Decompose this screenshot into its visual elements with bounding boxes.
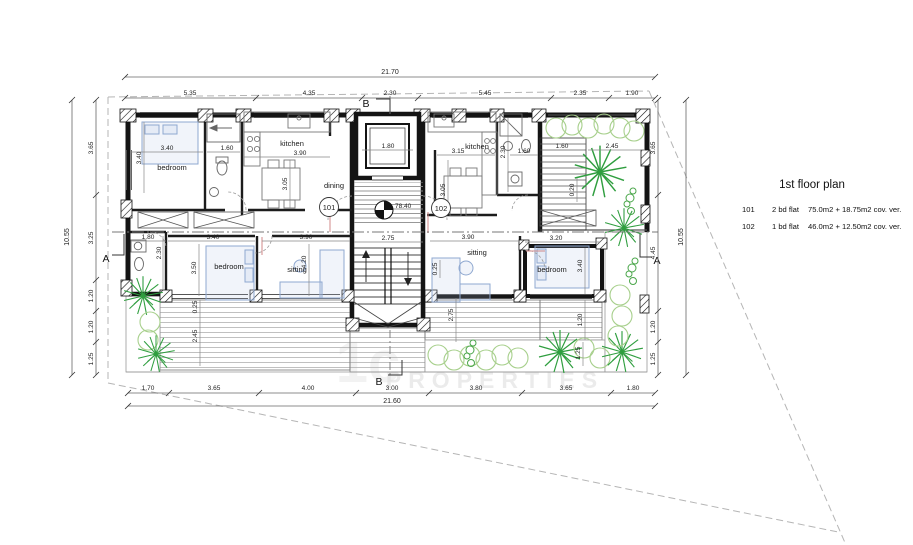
palm-tree — [575, 146, 627, 198]
dining-table-101 — [262, 168, 300, 200]
basin-101b — [134, 242, 142, 250]
dim-sitting102-w: 3.90 — [462, 234, 475, 241]
title-block: 1st floor plan 101 2 bd flat 75.0m2 + 18… — [742, 179, 901, 231]
room-kitchen-101: kitchen — [280, 139, 304, 148]
section-label-a-left: A — [102, 253, 109, 265]
room-sitting-102: sitting — [467, 248, 487, 257]
flat-tag-102: 102 — [435, 204, 448, 213]
dim-left-4: 1.20 — [88, 320, 95, 333]
dim-bed101-h: 3.40 — [136, 151, 143, 164]
washer-102 — [508, 172, 522, 186]
dim-right-3: 1.20 — [650, 320, 657, 333]
dim-stair-w: 2.75 — [382, 235, 395, 242]
dim-top-4: 5.45 — [479, 90, 492, 97]
dim-bottom-5: 3.80 — [470, 385, 483, 392]
stair-internal — [354, 248, 421, 327]
room-bedroom-102: bedroom — [537, 265, 567, 274]
legend-area-102: 46.0m2 + 12.50m2 cov. ver. — [808, 222, 901, 231]
dim-left-total: 10.55 — [64, 228, 71, 246]
room-bedroom-101top: bedroom — [157, 163, 187, 172]
wc-toilet-101b — [135, 258, 144, 271]
dim-bed102-h: 3.40 — [577, 259, 584, 272]
room-kitchen-102: kitchen — [465, 142, 489, 151]
dim-deck102-h: 2.75 — [448, 308, 455, 321]
veranda-101-deck — [160, 300, 350, 370]
dim-bottom-4: 3.00 — [386, 385, 399, 392]
dim-deck102r-b: 1.25 — [575, 346, 582, 359]
dim-deck101-off: 0.25 — [192, 300, 199, 313]
dim-right-4: 1.25 — [650, 352, 657, 365]
section-label-b-bottom: B — [375, 376, 382, 388]
dim-sitting101-w: 3.90 — [300, 234, 313, 241]
dim-deck101-h: 2.45 — [192, 329, 199, 342]
floor-plan-sheet: 1c PROPERTIES — [0, 0, 913, 545]
dim-top-1: 5.35 — [184, 90, 197, 97]
veranda-102-deck — [425, 300, 540, 340]
dim-bottom-3: 4.00 — [302, 385, 315, 392]
dim-bottom-total: 21.60 — [383, 398, 401, 405]
dim-lift-w: 1.80 — [382, 143, 395, 150]
section-label-b-top: B — [362, 98, 369, 110]
dim-kitchen102-w: 3.15 — [452, 148, 465, 155]
basin-101 — [210, 188, 219, 197]
legend-type-101: 2 bd flat — [772, 205, 800, 214]
room-bedroom-101: bedroom — [214, 262, 244, 271]
dim-left-1: 3.65 — [88, 141, 95, 154]
dim-kitchen102-h: 3.05 — [440, 183, 447, 196]
dim-extstair-off: 0.20 — [569, 183, 576, 196]
dim-top-2: 4.35 — [303, 90, 316, 97]
legend-row: 102 1 bd flat 46.0m2 + 12.50m2 cov. ver. — [742, 222, 901, 231]
dim-bed102-w: 3.20 — [550, 235, 563, 242]
dim-right-2: 4.45 — [650, 246, 657, 259]
room-sitting-101: sitting — [287, 265, 307, 274]
dim-dining101-h: 3.05 — [282, 177, 289, 190]
legend-area-101: 75.0m2 + 18.75m2 cov. ver. — [808, 205, 901, 214]
veranda-center-deck — [350, 328, 425, 372]
dim-top-5: 2.35 — [574, 90, 587, 97]
legend-row: 101 2 bd flat 75.0m2 + 18.75m2 cov. ver. — [742, 205, 901, 214]
veranda-102b-deck — [540, 300, 602, 340]
dim-deck102r-a: 1.20 — [577, 313, 584, 326]
sheet-title: 1st floor plan — [779, 179, 845, 191]
dim-wc101-w: 1.80 — [142, 234, 155, 241]
dim-left-5: 1.25 — [88, 352, 95, 365]
level-landing: 78.40 — [395, 203, 412, 210]
dim-bed101-w: 3.40 — [161, 145, 174, 152]
legend-no-102: 102 — [742, 222, 755, 231]
dim-right-1: 3.65 — [650, 141, 657, 154]
dim-left-3: 1.20 — [88, 289, 95, 302]
legend-type-102: 1 bd flat — [772, 222, 800, 231]
room-dining-101: dining — [324, 181, 344, 190]
dim-extstair-w: 1.60 — [556, 143, 569, 150]
dim-terrace-w: 2.45 — [606, 143, 619, 150]
sofa-101 — [320, 250, 344, 298]
dim-bed101b-w: 3.40 — [207, 234, 220, 241]
dim-wc101-h: 2.30 — [156, 246, 163, 259]
dim-top-6: 1.90 — [626, 90, 639, 97]
dim-deck102-off: 0.25 — [432, 262, 439, 275]
floor-plan-canvas: 1c PROPERTIES — [0, 0, 913, 545]
flat-tag-101: 101 — [323, 203, 336, 212]
dim-left-2: 3.25 — [88, 231, 95, 244]
legend-no-101: 101 — [742, 205, 755, 214]
dim-bottom-1: 1.70 — [142, 385, 155, 392]
dim-bath102-w: 1.60 — [518, 148, 531, 155]
dim-right-total: 10.55 — [678, 228, 685, 246]
dim-bottom-2: 3.65 — [208, 385, 221, 392]
dim-bath101-w: 1.60 — [221, 145, 234, 152]
dim-bottom-6: 3.65 — [560, 385, 573, 392]
dim-bed101b-h: 3.50 — [191, 261, 198, 274]
dim-kitchen101-w: 3.90 — [294, 150, 307, 157]
dim-top-total: 21.70 — [381, 69, 399, 76]
dim-bottom-7: 1.80 — [627, 385, 640, 392]
dim-top-3: 2.30 — [384, 90, 397, 97]
dim-bath102-h: 2.30 — [500, 145, 507, 158]
